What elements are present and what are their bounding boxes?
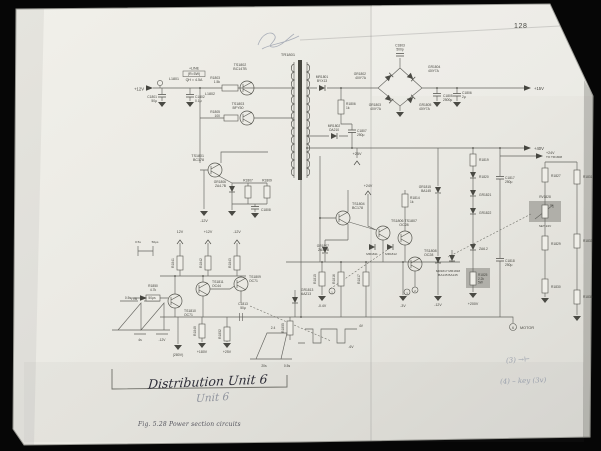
junction-dot: [199, 87, 201, 89]
resistor-symbol: [470, 154, 476, 166]
schematic-label: R1833: [583, 239, 593, 243]
schematic-label: R1815: [313, 274, 317, 284]
schematic-label: -12V: [159, 338, 167, 342]
schematic-label: 500p: [396, 47, 404, 51]
schematic-label: R1835: [583, 295, 593, 299]
schematic-label: OC71: [249, 279, 258, 283]
schematic-label: OC28: [424, 253, 433, 257]
schematic-label: C1808: [261, 208, 271, 212]
schematic-label: TO TR1808: [546, 155, 562, 159]
schematic-label: OC71: [184, 313, 193, 317]
resistor-symbol: [338, 272, 344, 286]
schematic-label: BA145: [421, 189, 431, 193]
schematic-label: TR1801: [281, 52, 296, 57]
schematic-label: OA210: [329, 128, 339, 132]
schematic-label: 250μ: [505, 263, 513, 267]
schematic-label: +200V: [468, 302, 479, 306]
handwritten-unit-label: Unit 6: [196, 391, 230, 405]
schematic-label: 2μ: [462, 95, 466, 99]
schematic-label: 2.4: [271, 326, 276, 330]
schematic-label: 0.1μ: [195, 99, 202, 103]
schematic-label: 0.5s: [284, 364, 291, 368]
junction-dot: [306, 147, 308, 149]
schematic-label: +15V: [534, 86, 544, 91]
schematic-label: 1.5k: [214, 80, 221, 84]
resistor-symbol: [574, 290, 580, 304]
junction-dot: [174, 275, 176, 277]
schematic-label: 2: [414, 289, 416, 293]
schematic-label: SET 24V: [539, 224, 552, 228]
resistor-symbol: [574, 170, 580, 184]
junction-dot: [351, 147, 353, 149]
resistor-symbol: [234, 256, 240, 270]
schematic-label: QH ≈ 4.5A: [186, 78, 203, 82]
schematic-label: +24V: [364, 184, 373, 188]
junction-dot: [319, 217, 321, 219]
resistor-symbol: [402, 194, 408, 207]
schematic-label: 5W: [478, 281, 483, 285]
junction-dot: [340, 87, 342, 89]
schematic-label: BC147B: [233, 67, 247, 71]
schematic-label: 4.7k: [150, 288, 157, 292]
schematic-label: -6V: [348, 345, 354, 349]
resistor-symbol: [222, 85, 238, 91]
junction-dot: [472, 147, 474, 149]
schematic-label: 1k: [410, 200, 414, 204]
resistor-symbol: [264, 186, 270, 198]
resistor-symbol: [224, 115, 238, 121]
resistor-symbol: [542, 168, 548, 182]
schematic-label: 0.5s: [135, 240, 141, 244]
schematic-label: +25V: [353, 152, 362, 156]
schematic-label: BFY50: [233, 106, 244, 110]
junction-dot: [340, 261, 342, 263]
schematic-label: +12V: [134, 87, 144, 92]
schematic-label: R1852: [218, 329, 222, 339]
figure-caption: Fig. 5.28 Power section circuits: [138, 421, 241, 428]
schematic-label: F/B: [131, 297, 137, 301]
schematic-label: 50μs: [152, 240, 159, 244]
schematic-label: -3V: [400, 304, 406, 308]
resistor-symbol: [338, 100, 344, 114]
schematic-label: R1819: [479, 158, 489, 162]
scanned-schematic-page: +12VL1801C180150μC18020.1μ+LINE(R=5W)QH …: [0, 0, 601, 451]
paper-shadow-right-edge: [583, 80, 593, 437]
schematic-label: +180V: [197, 350, 208, 354]
schematic-label: -12V: [233, 230, 241, 234]
schematic-label: R1855: [281, 323, 285, 333]
schematic-label: 0.5s: [125, 296, 132, 300]
schematic-label: 3: [406, 291, 408, 295]
schematic-label: 20s: [261, 364, 267, 368]
schematic-label: +40V: [534, 146, 544, 151]
schematic-label: 50μ: [240, 306, 246, 310]
schematic-label: R1831: [583, 175, 593, 179]
schematic-label: GR1822: [479, 211, 491, 215]
schematic-label: R1816: [332, 274, 336, 284]
schematic-label: ZA6.2: [479, 247, 488, 251]
schematic-label: -12V: [200, 219, 208, 223]
resistor-symbol: [542, 279, 548, 293]
schematic-label: R1817: [357, 274, 361, 284]
junction-dot: [365, 261, 367, 263]
paper-bright-topright: [372, 4, 593, 96]
schematic-label: (280V): [173, 353, 184, 357]
resistor-symbol: [205, 256, 211, 270]
schematic-label: BC178: [352, 206, 363, 210]
junction-dot: [437, 261, 439, 263]
resistor-symbol: [363, 272, 369, 286]
schematic-label: 250μ: [505, 180, 513, 184]
schematic-label: R1849: [193, 326, 197, 336]
schematic-label: R1843: [228, 258, 232, 268]
schematic-label: BYX13: [317, 79, 327, 83]
handwritten-note-2: (4) – key (3v): [500, 376, 547, 386]
schematic-label: 40IY7A: [428, 69, 440, 73]
schematic-label: 12V: [177, 230, 184, 234]
schematic-label: 100: [214, 114, 220, 118]
schematic-label: R1809: [262, 179, 272, 183]
schematic-label: R1829: [551, 242, 561, 246]
schematic-label: OC44: [212, 284, 221, 288]
paper-shadow-bottom: [24, 362, 584, 442]
schematic-label: -12V: [434, 303, 442, 307]
resistor-symbol: [224, 327, 230, 341]
handwritten-note-1: (3) →⊢: [506, 355, 531, 365]
schematic-label: 2500μ: [443, 98, 452, 102]
schematic-label: +LINE: [189, 67, 200, 71]
resistor-symbol: [287, 321, 293, 335]
schematic-label: (R=5W): [188, 72, 200, 76]
schematic-label: R1842: [199, 258, 203, 268]
junction-dot: [202, 275, 204, 277]
schematic-label: 250μ: [357, 133, 365, 137]
resistor-symbol: [470, 272, 476, 285]
schematic-label: R1820: [479, 175, 489, 179]
schematic-label: ZA4.7B: [318, 248, 330, 252]
resistor-symbol: [574, 234, 580, 248]
schematic-label: R1830: [551, 285, 561, 289]
resistor-symbol: [177, 256, 183, 270]
schematic-label: MR1811: [366, 252, 378, 256]
schematic-label: GR1821: [479, 193, 491, 197]
schematic-label: 40IY7A: [355, 76, 367, 80]
resistor-symbol: [245, 186, 251, 198]
schematic-label: -0.4V: [318, 304, 327, 308]
junction-dot: [321, 261, 323, 263]
schematic-label: RV1828: [539, 195, 551, 199]
junction-dot: [402, 261, 404, 263]
resistor-symbol: [542, 236, 548, 250]
resistor-symbol: [319, 272, 325, 286]
schematic-label: +25V: [223, 350, 232, 354]
junction-dot: [300, 316, 302, 318]
schematic-label: 40IY7A: [419, 107, 431, 111]
schematic-label: 40IY7A: [370, 107, 382, 111]
schematic-label: R1807: [243, 179, 253, 183]
schematic-label: R1827: [551, 174, 561, 178]
junction-dot: [436, 87, 438, 89]
schematic-label: AAZ13: [301, 292, 311, 296]
schematic-label: L1802: [205, 92, 215, 96]
resistor-symbol: [199, 324, 205, 338]
schematic-label: BC178: [193, 158, 204, 162]
schematic-label: BA145 BA145: [438, 273, 458, 277]
schematic-label: MOTOR: [520, 326, 534, 330]
schematic-label: 4s: [138, 338, 142, 342]
schematic-label: OC28: [399, 223, 408, 227]
page-number: 128: [514, 23, 527, 30]
schematic-label: MR1812: [385, 252, 397, 256]
junction-dot: [456, 87, 458, 89]
schematic-label: ZA4.7B: [215, 184, 227, 188]
junction-dot: [499, 147, 501, 149]
resistor-symbol: [542, 205, 548, 218]
schematic-label: L1801: [169, 77, 179, 81]
schematic-label: +12V: [204, 230, 213, 234]
schematic-label: 50μ: [151, 99, 157, 103]
schematic-label: 1: [331, 290, 333, 294]
schematic-label: R1841: [171, 258, 175, 268]
transformer-core: [298, 60, 302, 180]
schematic-label: 50μs: [148, 296, 156, 300]
schematic-label: 6: [512, 326, 514, 330]
schematic-label: 1k: [346, 106, 350, 110]
